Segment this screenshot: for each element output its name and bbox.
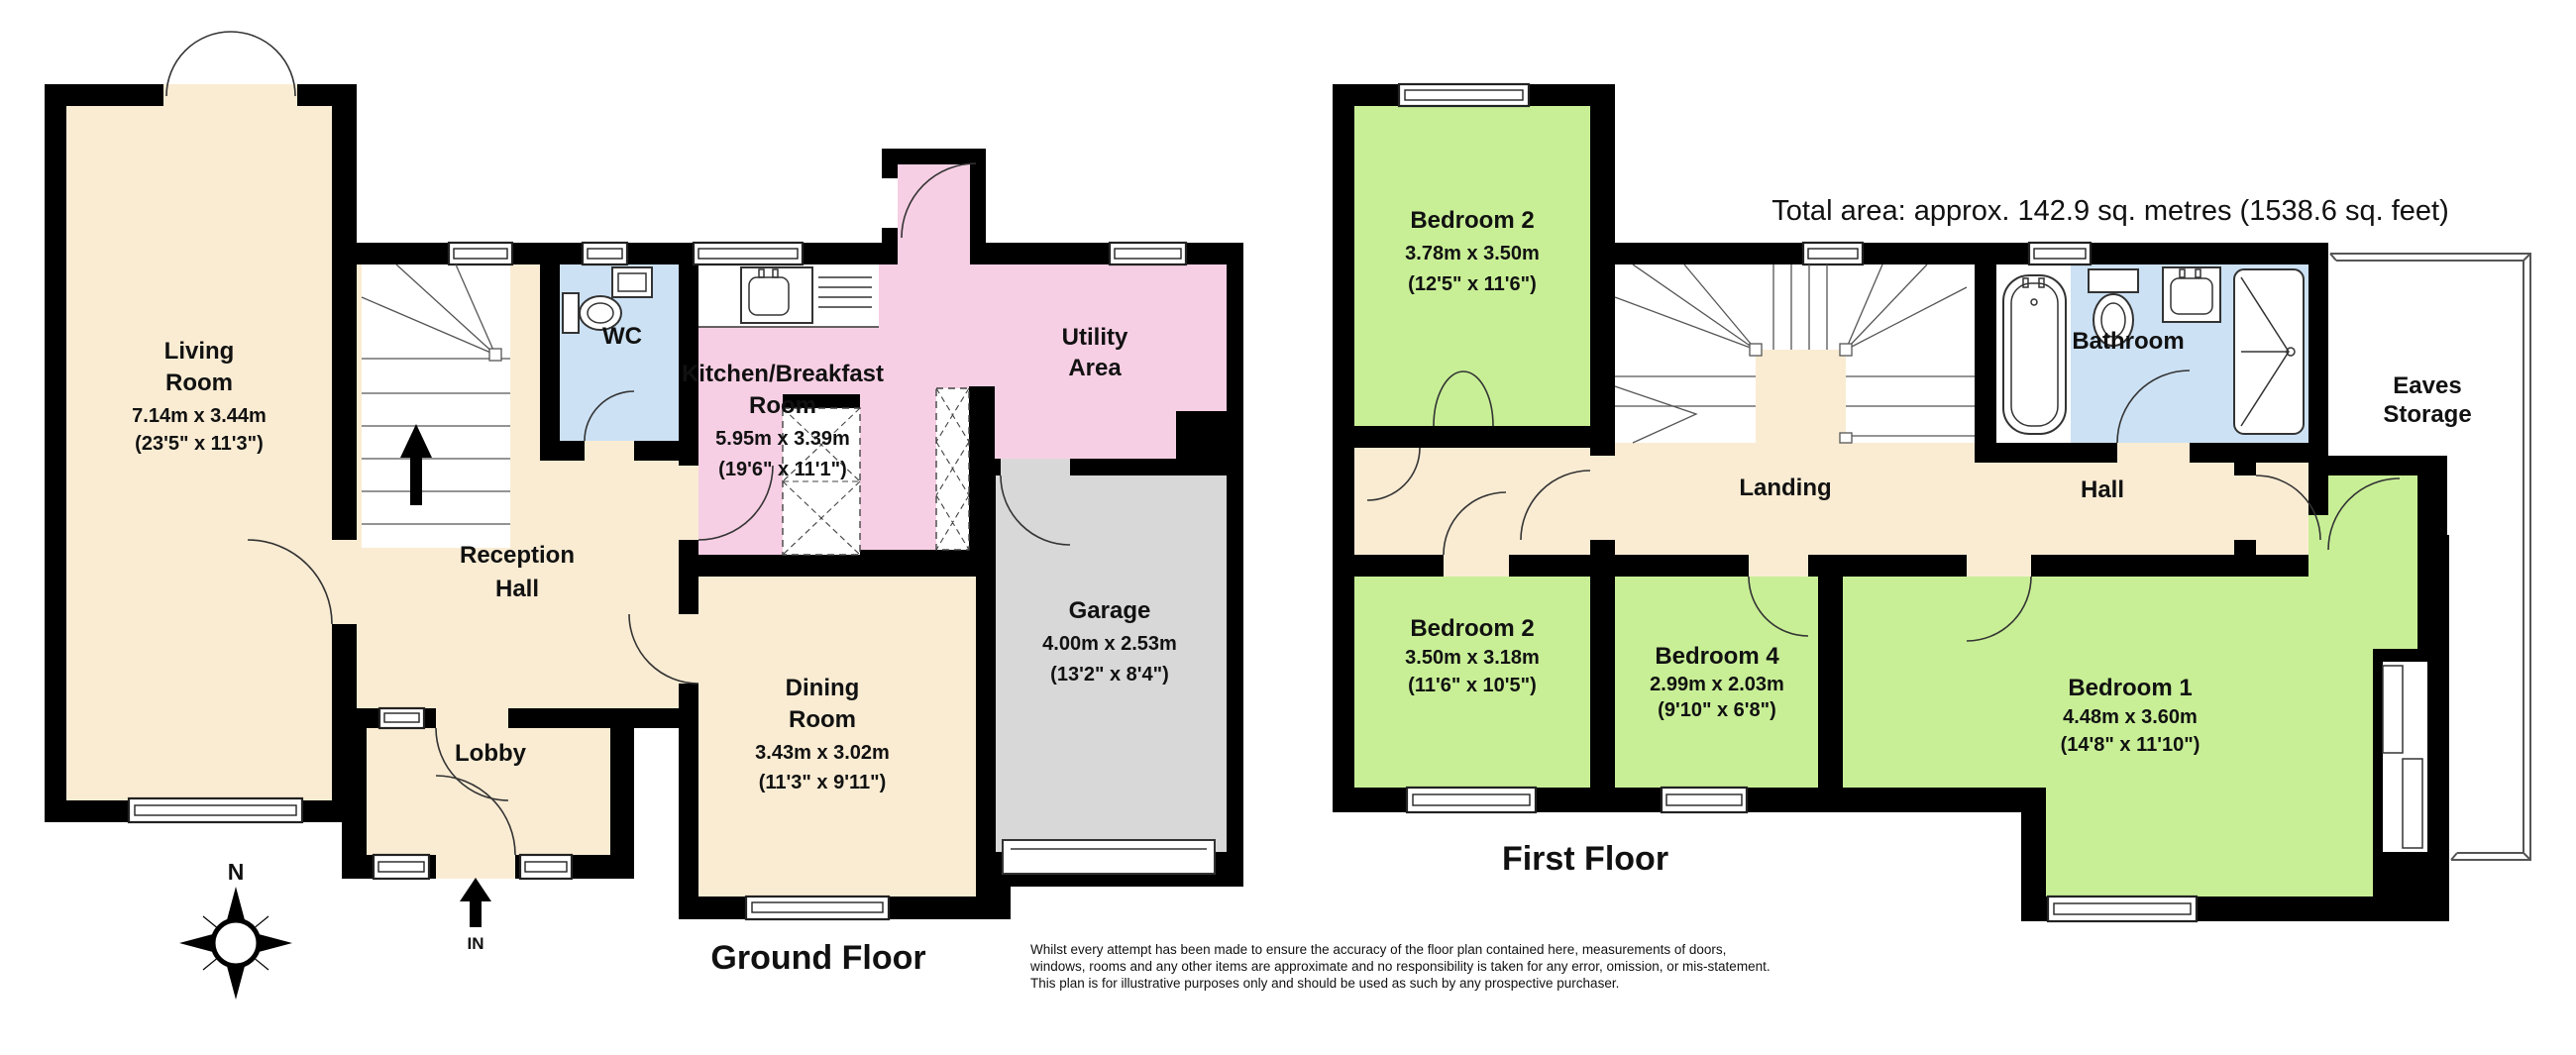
first-floor-title: First Floor: [1502, 840, 1668, 878]
wc-sink-icon: [612, 267, 652, 297]
hall-label: Hall: [2081, 476, 2124, 503]
room-dining: [698, 577, 976, 897]
svg-text:2.99m x 2.03m: 2.99m x 2.03m: [1650, 674, 1784, 695]
room-bedroom2-top: [1354, 106, 1590, 426]
disclaimer-line-1: Whilst every attempt has been made to en…: [1030, 942, 1726, 957]
window: [129, 798, 302, 822]
svg-text:(14'8" x 11'10"): (14'8" x 11'10"): [2061, 734, 2200, 756]
wc-label: WC: [602, 323, 642, 350]
disclaimer-line-2: windows, rooms and any other items are a…: [1029, 959, 1771, 974]
entrance-label: IN: [468, 934, 484, 953]
svg-text:Storage: Storage: [2383, 401, 2471, 428]
landing-label: Landing: [1739, 475, 1831, 501]
ground-floor-title: Ground Floor: [710, 939, 925, 977]
svg-text:(11'6" x 10'5"): (11'6" x 10'5"): [1408, 675, 1537, 696]
kitchen-label: Kitchen/Breakfast: [682, 361, 884, 387]
window: [1399, 84, 1529, 106]
window: [520, 855, 572, 879]
svg-text:(12'5" x 11'6"): (12'5" x 11'6"): [1408, 273, 1537, 295]
svg-text:3.78m x 3.50m: 3.78m x 3.50m: [1405, 243, 1540, 264]
window: [1407, 788, 1536, 812]
total-area-text: Total area: approx. 142.9 sq. metres (15…: [1771, 195, 2449, 227]
svg-text:(11'3" x 9'11"): (11'3" x 9'11"): [759, 772, 887, 793]
window: [746, 897, 889, 919]
compass-north-label: N: [228, 859, 245, 885]
utility-label: Utility: [1062, 324, 1128, 351]
svg-text:Room: Room: [165, 369, 233, 396]
window: [1662, 788, 1747, 812]
bath-icon: [2003, 275, 2066, 434]
bedroom2-top-label: Bedroom 2: [1410, 207, 1534, 234]
svg-text:(19'6" x 11'1"): (19'6" x 11'1"): [718, 459, 847, 480]
svg-text:Room: Room: [749, 392, 816, 419]
eaves-storage-label: Eaves: [2393, 372, 2461, 399]
bedroom2-bottom-label: Bedroom 2: [1410, 615, 1534, 642]
lobby-label: Lobby: [455, 740, 527, 767]
svg-text:Hall: Hall: [495, 576, 539, 602]
window: [449, 243, 512, 264]
bathroom-label: Bathroom: [2072, 328, 2184, 355]
living-room-label: Living: [164, 338, 235, 365]
window: [2029, 243, 2091, 264]
stairwell-void: [1756, 350, 1846, 443]
dining-room-label: Dining: [786, 675, 860, 701]
bedroom4-label: Bedroom 4: [1655, 643, 1779, 670]
floor-plan-page: N IN Living Room 7.14m x 3.44m (23'5" x …: [0, 0, 2576, 1055]
window: [379, 708, 424, 728]
window: [583, 243, 627, 264]
svg-text:3.43m x 3.02m: 3.43m x 3.02m: [755, 742, 890, 764]
svg-text:4.48m x 3.60m: 4.48m x 3.60m: [2063, 706, 2198, 728]
compass-icon: [179, 887, 292, 1000]
svg-text:(13'2" x 8'4"): (13'2" x 8'4"): [1050, 664, 1169, 686]
svg-text:5.95m x 3.39m: 5.95m x 3.39m: [715, 428, 850, 450]
entrance-arrow-icon: [460, 878, 491, 927]
window: [374, 855, 429, 879]
svg-text:4.00m x 2.53m: 4.00m x 2.53m: [1042, 633, 1177, 655]
bedroom1-label: Bedroom 1: [2068, 675, 2192, 701]
wardrobe-icon: [2383, 662, 2427, 852]
window: [694, 243, 803, 264]
svg-text:Room: Room: [789, 706, 856, 733]
bathroom-sink-icon: [2163, 267, 2220, 322]
svg-text:(9'10" x 6'8"): (9'10" x 6'8"): [1658, 699, 1776, 721]
reception-hall-label: Reception: [460, 542, 575, 569]
window: [1803, 243, 1863, 264]
garage-label: Garage: [1069, 597, 1151, 624]
floor-plan-svg: N IN Living Room 7.14m x 3.44m (23'5" x …: [0, 0, 2576, 1055]
window: [1110, 243, 1186, 264]
garage-door-icon: [1003, 840, 1215, 874]
svg-text:(23'5" x 11'3"): (23'5" x 11'3"): [135, 433, 264, 455]
svg-text:7.14m x 3.44m: 7.14m x 3.44m: [132, 405, 267, 427]
shower-icon: [2234, 269, 2304, 434]
window: [2048, 897, 2197, 921]
disclaimer-line-3: This plan is for illustrative purposes o…: [1030, 976, 1619, 991]
svg-text:3.50m x 3.18m: 3.50m x 3.18m: [1405, 647, 1540, 669]
svg-text:Area: Area: [1068, 355, 1122, 381]
